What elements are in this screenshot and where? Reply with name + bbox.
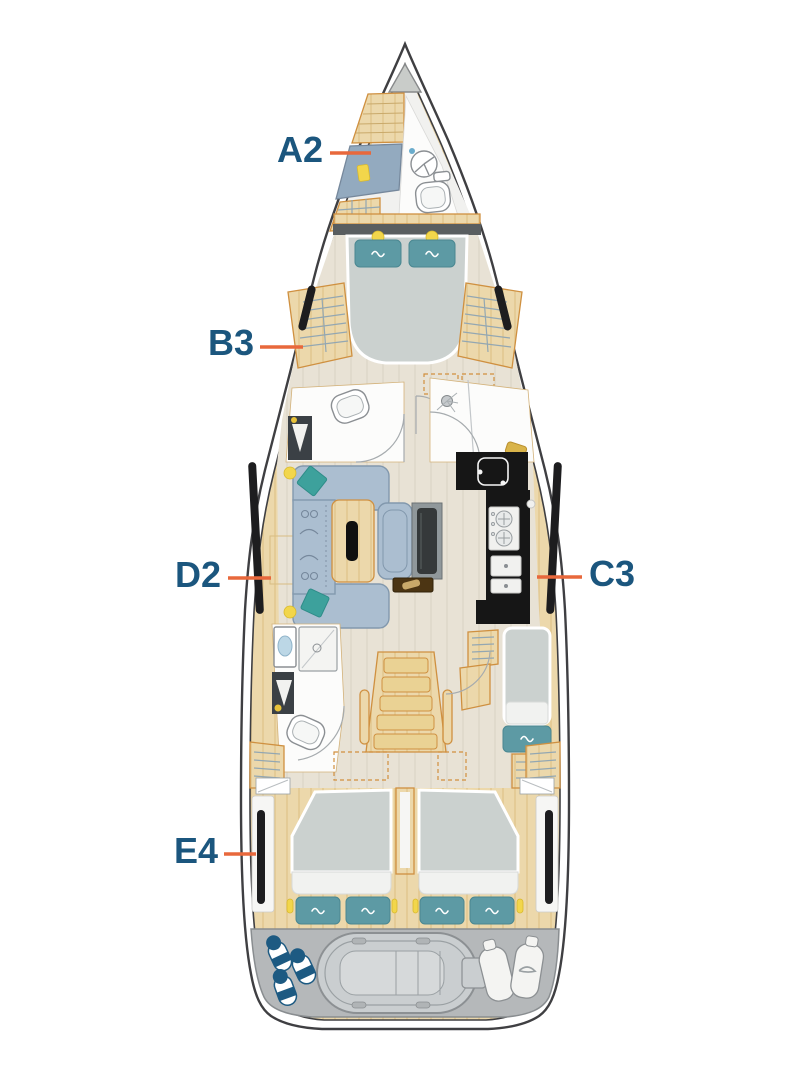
berth-lamp (517, 899, 523, 913)
dinghy-floor (340, 951, 444, 995)
salon-lamp (284, 467, 296, 479)
berth-lamp (287, 899, 293, 913)
drawer-knob (504, 584, 508, 588)
berth-lamp (413, 899, 418, 913)
label-e4: E4 (174, 830, 218, 871)
forward-headboard (333, 224, 481, 235)
oven-knob (504, 564, 508, 568)
vanity-lamp (291, 417, 297, 423)
mid-lower-area (272, 624, 551, 788)
hull-window-aft-port-e4 (257, 810, 265, 904)
yacht-floorplan: A2 B3 D2 C3 E4 (0, 0, 810, 1080)
berth-cabinet (468, 630, 498, 668)
forward-bulkhead-shelf (334, 214, 480, 224)
table-slot (346, 521, 358, 561)
label-b3: B3 (208, 322, 254, 363)
sink-drain (501, 481, 506, 486)
berth-lamp (392, 899, 397, 913)
aft-bath-basin (278, 636, 292, 656)
berth-cabinet-lower (460, 664, 490, 710)
label-a2: A2 (277, 129, 323, 170)
divider-panel (400, 792, 410, 868)
hull-window-aft-starboard (545, 810, 553, 904)
sink-faucet (478, 470, 483, 475)
label-d2: D2 (175, 554, 221, 595)
bow-bath-fitting (409, 148, 415, 154)
tv-screen (417, 508, 437, 574)
handrail-starboard (443, 690, 452, 744)
crew-cabin-shelf (352, 93, 404, 143)
floorplan-svg: A2 B3 D2 C3 E4 (0, 0, 810, 1080)
aft-bed-port-sheet (292, 872, 391, 894)
salon-lamp (284, 606, 296, 618)
stern-garage (251, 929, 559, 1017)
crew-berth-pillow (357, 164, 370, 181)
bow-area (330, 64, 481, 235)
handrail-port (360, 690, 369, 744)
label-c3: C3 (589, 553, 635, 594)
aft-vanity-lamp (275, 705, 282, 712)
aft-bed-starboard-sheet (419, 872, 518, 894)
berth-sheet (506, 702, 548, 724)
galley-fitting (527, 500, 535, 508)
